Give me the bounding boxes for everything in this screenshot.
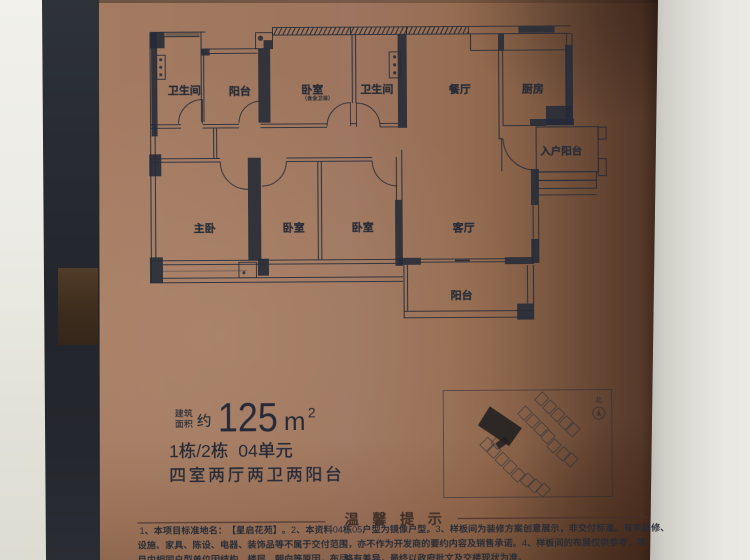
svg-text:04: 04: [238, 441, 258, 461]
svg-text:04: 04: [333, 525, 343, 535]
svg-text:/2: /2: [196, 441, 211, 461]
svg-text:05: 05: [352, 525, 362, 535]
svg-text:m: m: [284, 406, 306, 436]
svg-text:1: 1: [139, 526, 144, 536]
svg-text:125: 125: [218, 394, 278, 440]
svg-text:2: 2: [291, 525, 296, 535]
svg-text:2: 2: [308, 404, 316, 420]
svg-text:1: 1: [169, 441, 179, 461]
svg-text:3: 3: [435, 524, 440, 534]
svg-text:4: 4: [522, 538, 527, 548]
